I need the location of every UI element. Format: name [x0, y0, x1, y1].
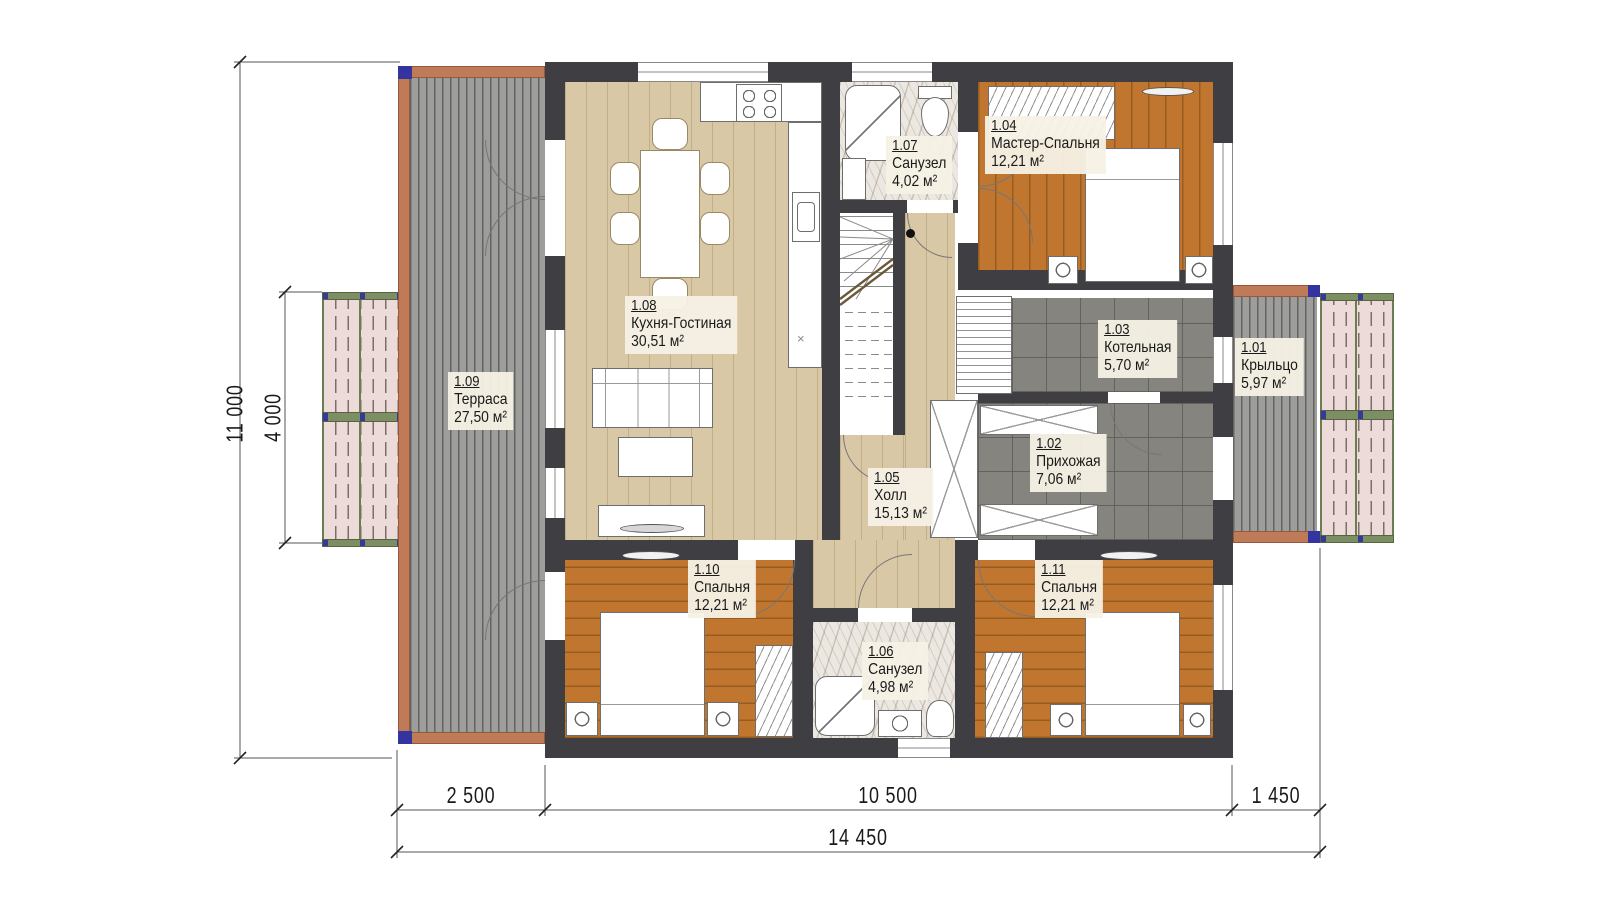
- door-opening: [545, 572, 565, 640]
- door-opening: [978, 540, 1035, 560]
- room-area: 30,51 м²: [631, 333, 731, 351]
- pergola-left-rail-mid: [322, 412, 400, 422]
- ceiling-light-icon: [1142, 87, 1194, 96]
- room-area: 4,98 м²: [868, 679, 922, 697]
- wall: [950, 738, 1233, 758]
- room-area: 12,21 м²: [694, 597, 750, 615]
- room-number: 1.04: [991, 118, 1100, 135]
- wall: [958, 62, 978, 132]
- room-number: 1.06: [868, 644, 922, 661]
- terrace-corner-marker-top: [398, 66, 412, 79]
- terrace-border-left: [398, 66, 410, 744]
- pergola-right-rail-bottom: [1320, 535, 1394, 543]
- porch-border-top: [1233, 285, 1317, 297]
- door-opening: [958, 132, 978, 243]
- wall: [912, 608, 975, 622]
- dining-chair: [700, 162, 730, 195]
- door-opening: [545, 140, 565, 256]
- wall: [1160, 392, 1233, 403]
- dim-house-width: 10 500: [841, 782, 935, 809]
- nightstand: [1050, 704, 1082, 736]
- window: [545, 330, 565, 428]
- room-label-hall: 1.05 Холл 15,13 м²: [868, 468, 933, 526]
- room-name: Холл: [874, 487, 927, 505]
- pergola-left-rail-top: [322, 292, 400, 300]
- entry-closet: [980, 504, 1098, 536]
- room-area: 12,21 м²: [991, 153, 1100, 171]
- dining-chair: [652, 118, 688, 150]
- dim-terrace-width: 2 500: [424, 782, 518, 809]
- room-number: 1.08: [631, 298, 731, 315]
- wall: [545, 738, 898, 758]
- door-opening: [858, 608, 912, 622]
- dining-chair: [610, 212, 640, 245]
- room-number: 1.03: [1104, 322, 1171, 339]
- stove-icon: [736, 84, 782, 122]
- room-number: 1.01: [1241, 340, 1298, 357]
- window: [1213, 337, 1233, 383]
- room-area: 7,06 м²: [1036, 471, 1101, 489]
- room-label-bedroom-110: 1.10 Спальня 12,21 м²: [688, 560, 756, 618]
- nightstand: [707, 702, 739, 736]
- room-name: Санузел: [868, 661, 922, 679]
- wall: [820, 200, 907, 213]
- stairs-pole-marker: [906, 229, 915, 238]
- wall: [1213, 245, 1233, 337]
- room-label-bedroom-111: 1.11 Спальня 12,21 м²: [1035, 560, 1103, 618]
- room-label-boiler: 1.03 Котельная 5,70 м²: [1098, 320, 1178, 378]
- room-label-entry-hall: 1.02 Прихожая 7,06 м²: [1030, 434, 1107, 492]
- window: [638, 62, 768, 82]
- stairs-landing: [840, 410, 893, 435]
- room-label-bath-107: 1.07 Санузел 4,02 м²: [886, 136, 952, 194]
- door-opening: [907, 200, 953, 213]
- hall-closet: [930, 400, 978, 538]
- terrace-corner-marker-bottom: [398, 731, 412, 744]
- floor-plan: 2 500 10 500 1 450 14 450 11 000 4 000: [0, 0, 1599, 905]
- porch-border-bottom: [1233, 531, 1317, 543]
- dining-chair: [610, 162, 640, 195]
- wall: [955, 540, 975, 758]
- dim-pergola-depth: 4 000: [260, 375, 287, 461]
- coffee-table: [618, 437, 693, 477]
- island-x-mark: ×: [797, 331, 805, 346]
- door-opening: [1213, 437, 1233, 500]
- room-name: Терраса: [454, 391, 507, 409]
- window: [1213, 143, 1233, 245]
- room-number: 1.10: [694, 562, 750, 579]
- bed: [600, 612, 705, 736]
- room-name: Котельная: [1104, 339, 1171, 357]
- wall: [545, 256, 565, 330]
- porch-corner-marker-bottom: [1308, 531, 1320, 543]
- nightstand: [1185, 256, 1213, 284]
- wall: [1213, 62, 1233, 143]
- dining-table: [640, 150, 700, 278]
- room-label-porch: 1.01 Крыльцо 5,97 м²: [1235, 338, 1304, 396]
- kitchen-counter-side: [788, 122, 822, 368]
- hall-closet: [956, 296, 1012, 394]
- ceiling-light-icon: [1100, 551, 1158, 560]
- terrace-border-bottom: [398, 732, 545, 744]
- wall: [793, 540, 813, 758]
- room-label-terrace: 1.09 Терраса 27,50 м²: [448, 372, 514, 430]
- pergola-left-rail-bottom: [322, 539, 400, 547]
- room-name: Прихожая: [1036, 453, 1101, 471]
- toilet-icon: [926, 700, 954, 737]
- wardrobe: [755, 645, 793, 737]
- nightstand: [1183, 704, 1211, 736]
- room-name: Крыльцо: [1241, 357, 1298, 375]
- room-name: Санузел: [892, 155, 946, 173]
- dim-porch-width: 1 450: [1229, 782, 1323, 809]
- room-number: 1.11: [1041, 562, 1097, 579]
- pergola-right-rail-mid: [1320, 410, 1394, 420]
- door-opening: [1108, 392, 1160, 403]
- wall: [793, 608, 858, 622]
- room-name: Спальня: [694, 579, 750, 597]
- room-number: 1.07: [892, 138, 946, 155]
- bath-sink-icon: [842, 158, 866, 200]
- room-area: 27,50 м²: [454, 409, 507, 427]
- wall: [545, 428, 565, 468]
- nightstand: [1048, 256, 1078, 284]
- room-label-master-bedroom: 1.04 Мастер-Спальня 12,21 м²: [985, 116, 1106, 174]
- porch-corner-marker-top: [1308, 285, 1320, 297]
- wall: [545, 62, 565, 140]
- bath-sink-icon: [878, 710, 922, 737]
- ceiling-light-icon: [622, 551, 680, 560]
- window: [545, 468, 565, 518]
- room-area: 4,02 м²: [892, 173, 946, 191]
- room-number: 1.02: [1036, 436, 1101, 453]
- room-area: 5,97 м²: [1241, 375, 1298, 393]
- room-label-kitchen-living: 1.08 Кухня-Гостиная 30,51 м²: [625, 296, 738, 354]
- door-opening: [738, 540, 795, 560]
- nightstand: [566, 702, 598, 736]
- wall: [893, 213, 905, 435]
- bed: [1085, 612, 1180, 736]
- window: [852, 62, 932, 82]
- room-area: 5,70 м²: [1104, 357, 1171, 375]
- dining-chair: [700, 212, 730, 245]
- stairs-lower: [840, 300, 893, 410]
- room-name: Кухня-Гостиная: [631, 315, 731, 333]
- room-area: 12,21 м²: [1041, 597, 1097, 615]
- porch-deck: [1233, 297, 1317, 531]
- window: [898, 738, 950, 758]
- room-number: 1.09: [454, 374, 507, 391]
- dim-total-width: 14 450: [811, 824, 905, 851]
- dim-house-depth: 11 000: [222, 363, 249, 464]
- sofa: [592, 368, 713, 428]
- entry-closet: [980, 405, 1098, 435]
- terrace-border-top: [398, 66, 545, 78]
- window: [1213, 585, 1233, 690]
- wardrobe: [985, 652, 1023, 738]
- room-label-bath-106: 1.06 Санузел 4,98 м²: [862, 642, 928, 700]
- room-area: 15,13 м²: [874, 505, 927, 523]
- room-name: Мастер-Спальня: [991, 135, 1100, 153]
- stairs-upper: [840, 213, 893, 300]
- sink-bowl-icon: [797, 202, 815, 232]
- tv-icon: [620, 524, 684, 533]
- room-number: 1.05: [874, 470, 927, 487]
- wall: [822, 62, 840, 540]
- room-name: Спальня: [1041, 579, 1097, 597]
- pergola-right-rail-top: [1320, 293, 1394, 301]
